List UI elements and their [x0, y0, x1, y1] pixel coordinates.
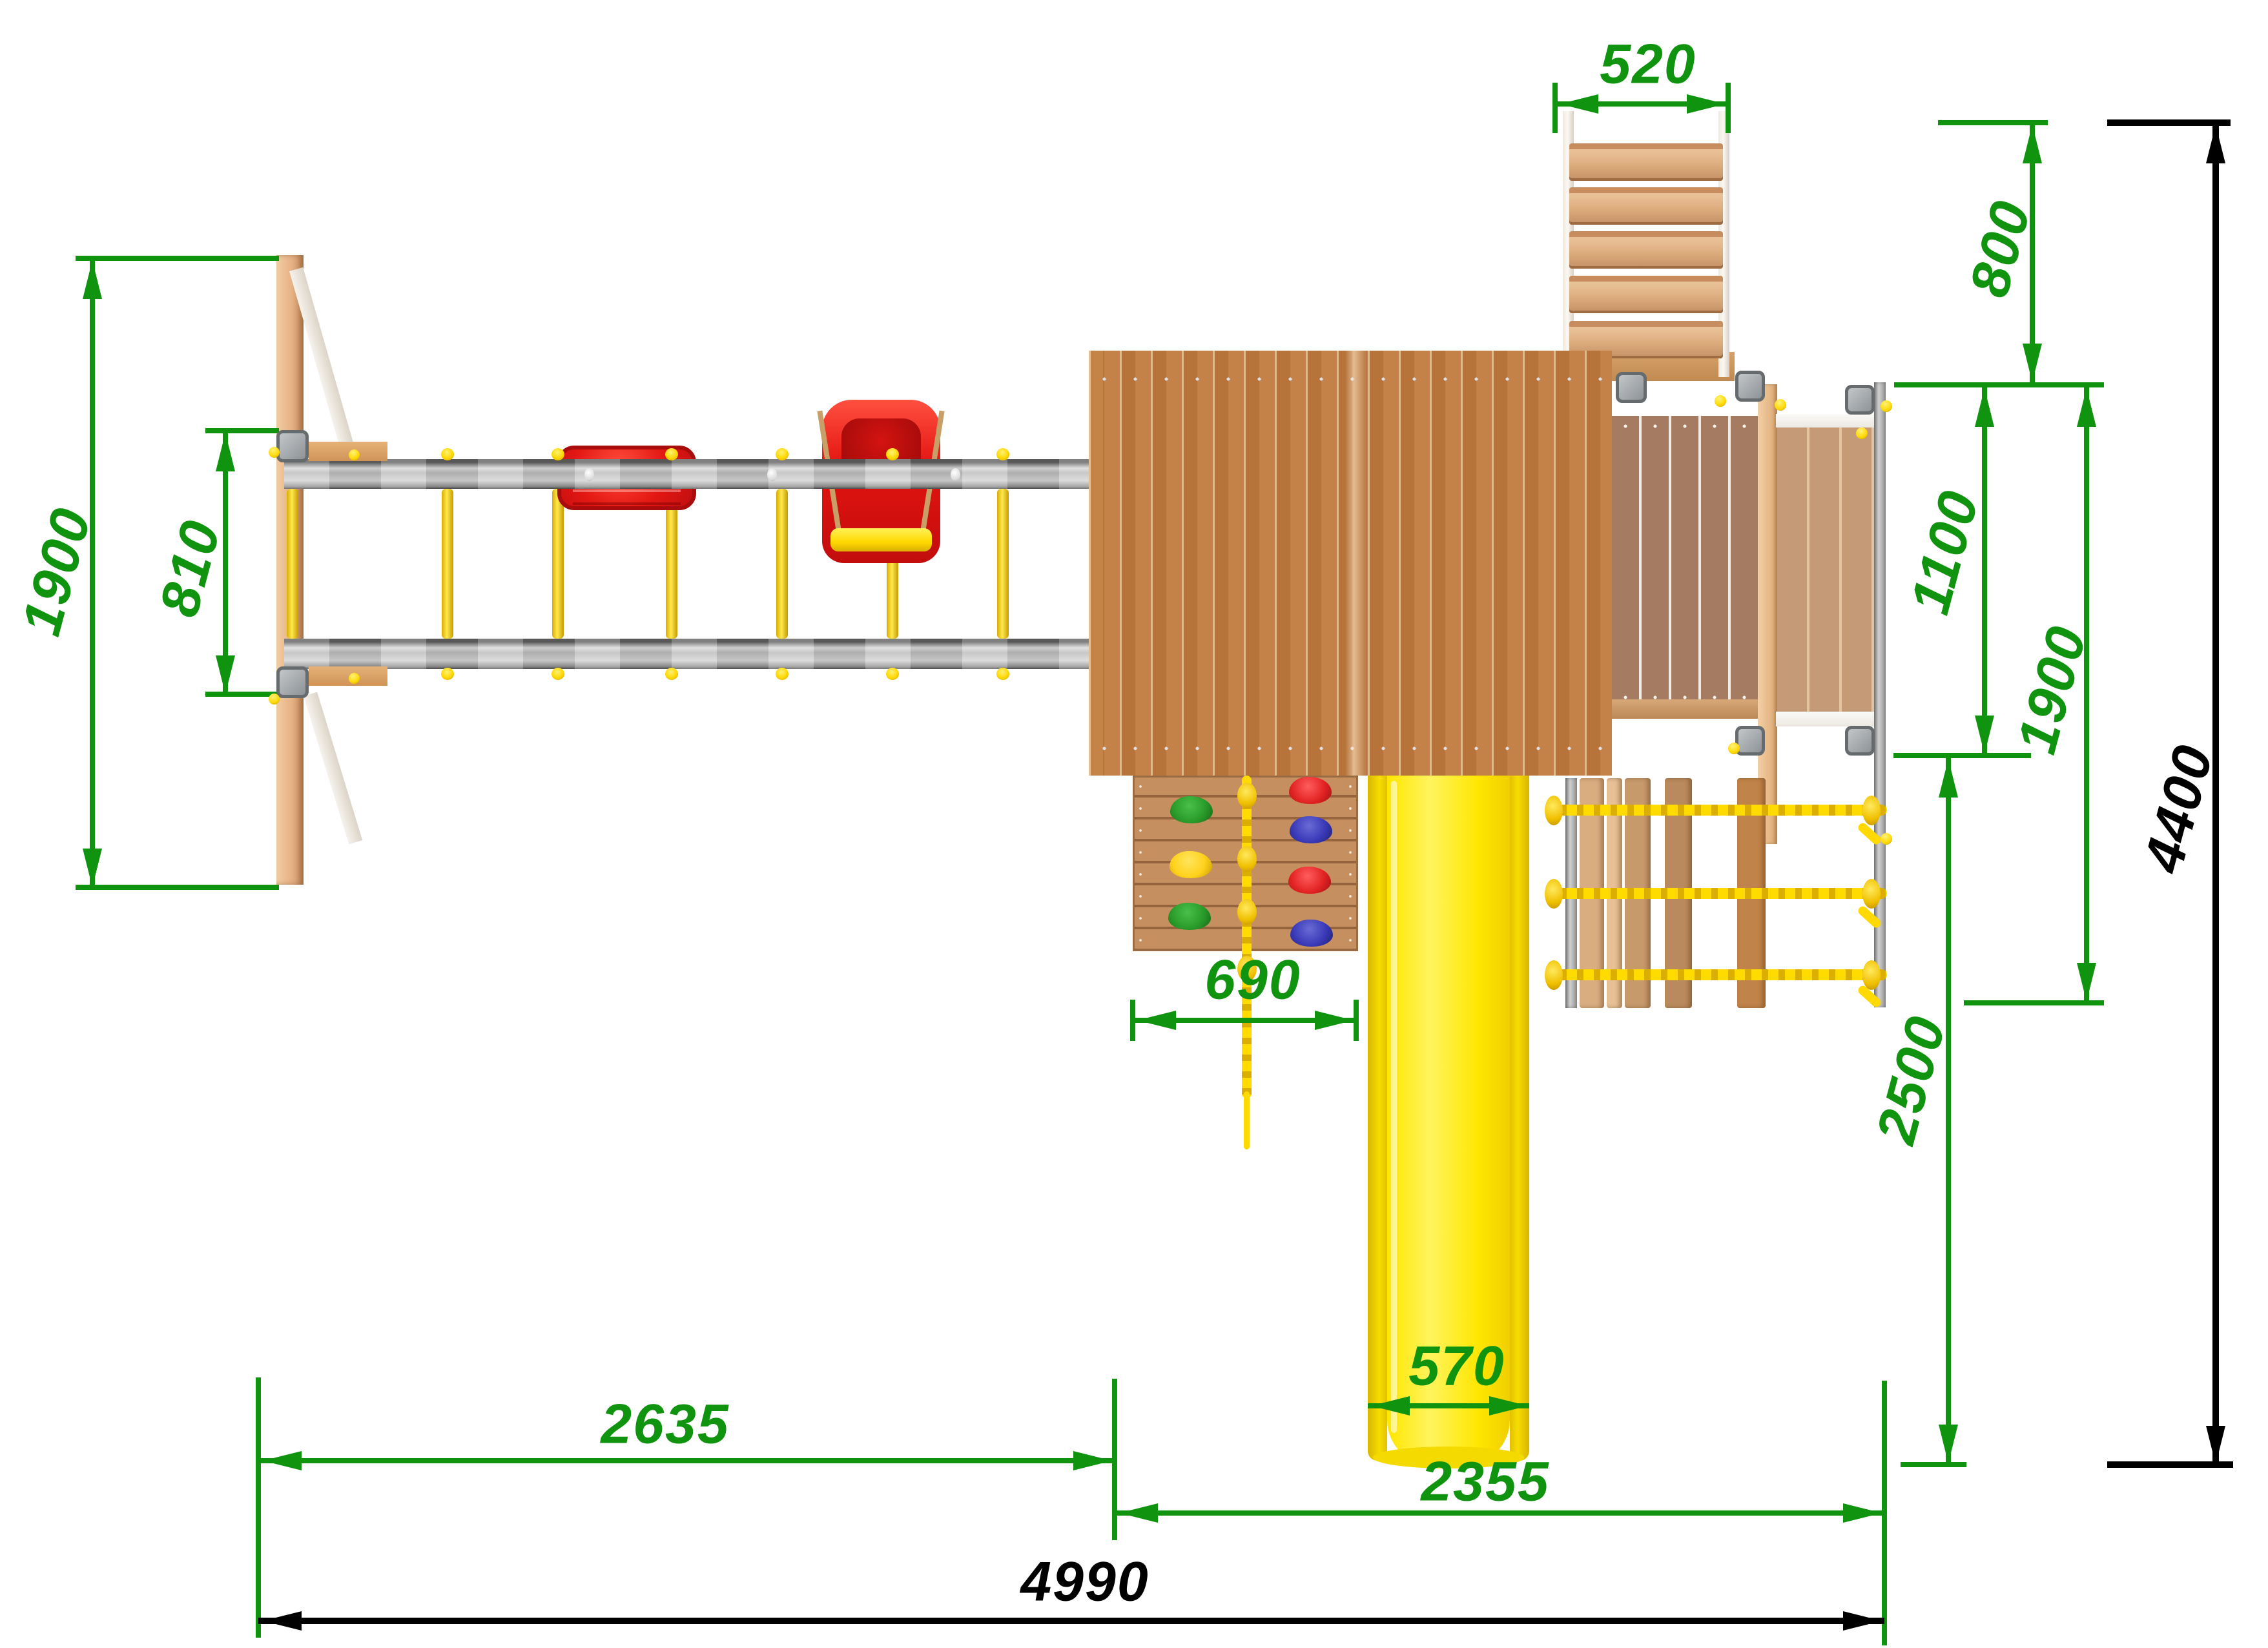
rung-cap: [552, 448, 564, 460]
rung-cap: [886, 448, 899, 460]
swing-rung: [287, 489, 298, 639]
swing-rung: [442, 489, 453, 639]
arrowhead-up: [1939, 757, 1958, 798]
dim-ext: [1552, 83, 1558, 133]
arrowhead-right: [1843, 1611, 1884, 1631]
dim-line: [1982, 385, 1987, 756]
beam-bolt: [584, 468, 594, 481]
slide-rail-left: [1368, 776, 1387, 1461]
arrowhead-up: [1975, 386, 1994, 427]
bolt-yellow: [1881, 833, 1892, 845]
arrowhead-right: [1073, 1451, 1114, 1470]
rope-knot: [1862, 960, 1881, 990]
bolt-yellow: [1728, 743, 1740, 754]
arrowhead-down: [2206, 1426, 2225, 1467]
deck-bracket: [1735, 371, 1765, 402]
climbing-rope-tail: [1244, 1091, 1250, 1149]
net-rope: [1550, 888, 1887, 899]
balcony-planks: [1777, 425, 1874, 714]
deck-bracket: [1735, 726, 1765, 756]
rung-cap: [552, 668, 564, 680]
dim-ext: [256, 1377, 261, 1638]
bolt-yellow: [1856, 427, 1868, 439]
dim-line: [2084, 385, 2089, 1003]
swing-brace-bottom: [304, 692, 362, 845]
beam-bracket-bottom: [276, 666, 309, 698]
deck-bottom-bar: [1609, 699, 1759, 719]
arrowhead-left: [261, 1611, 302, 1631]
swing-rung: [776, 489, 788, 639]
slide-glare: [1391, 781, 1397, 1433]
rung-cap: [665, 668, 678, 680]
roof-seam: [1345, 351, 1367, 776]
arrowhead-left: [1135, 1011, 1176, 1030]
bolt-yellow: [269, 447, 280, 458]
dim-line: [258, 1618, 1884, 1624]
arrowhead-up: [2206, 123, 2225, 163]
beam-bracket-top: [276, 430, 309, 462]
arrowhead-right: [1687, 94, 1727, 114]
swing-beam-top: [284, 459, 1089, 489]
rope-knot: [1545, 960, 1563, 990]
rung-cap: [776, 448, 789, 460]
rope-knot: [1237, 899, 1257, 925]
rung-cap: [996, 448, 1009, 460]
beam-block-top: [309, 442, 387, 461]
stair-tread: [1569, 231, 1723, 269]
climb-hold-yellow: [1170, 851, 1212, 878]
beam-bolt: [951, 468, 960, 481]
dim-line: [258, 1458, 1115, 1463]
deck-planks: [1612, 416, 1758, 717]
climb-hold-red: [1288, 867, 1331, 894]
dim-label-810: 810: [147, 513, 234, 623]
arrowhead-up: [216, 431, 235, 471]
dim-label-1100: 1100: [1898, 484, 1992, 621]
bolt-yellow: [349, 673, 360, 684]
dim-label-2355: 2355: [1421, 1450, 1549, 1514]
arrowhead-down: [83, 849, 102, 889]
rung-cap: [441, 668, 454, 680]
bolt-yellow: [269, 694, 280, 705]
deck-right-rail: [1874, 382, 1886, 1007]
climb-hold-blue: [1290, 920, 1333, 947]
rung-cap: [886, 668, 899, 680]
balcony-rail-bottom: [1776, 712, 1875, 726]
stair-tread: [1569, 143, 1723, 181]
climbing-rope: [1242, 776, 1252, 1098]
baby-seat-tbar: [830, 528, 932, 551]
swing-rung: [666, 489, 677, 639]
rope-knot: [1862, 796, 1881, 825]
dim-label-4990: 4990: [1020, 1550, 1149, 1614]
dim-tick: [1893, 753, 2031, 758]
deck-bracket: [1845, 385, 1875, 415]
arrowhead-left: [1369, 1396, 1410, 1416]
bolt-yellow: [1775, 399, 1786, 411]
drawing-canvas: 1900 810 520 800 1100: [0, 0, 2268, 1648]
arrowhead-down: [1939, 1425, 1958, 1465]
arrowhead-left: [1558, 94, 1598, 114]
arrowhead-right: [1315, 1011, 1356, 1030]
arrowhead-right: [1843, 1503, 1884, 1523]
tower-roof: [1089, 351, 1612, 776]
dim-tick: [76, 885, 279, 890]
dim-label-2635: 2635: [601, 1393, 729, 1457]
stair-tread: [1569, 276, 1723, 313]
bolt-yellow: [1715, 395, 1726, 407]
deck-bracket: [1845, 726, 1875, 756]
arrowhead-left: [261, 1451, 302, 1470]
arrowhead-right: [1489, 1396, 1530, 1416]
bolt-yellow: [1881, 400, 1892, 412]
rung-cap: [776, 668, 789, 680]
arrowhead-up: [83, 258, 102, 299]
slide-rail-right: [1510, 776, 1529, 1461]
dim-label-2500: 2500: [1864, 1009, 1959, 1150]
dim-tick: [1894, 382, 2104, 387]
arrowhead-down: [216, 655, 235, 696]
climb-hold-green: [1170, 796, 1213, 823]
dim-label-520: 520: [1600, 33, 1696, 97]
rope-knot: [1862, 879, 1881, 909]
flat-seat-ridges: [573, 489, 681, 505]
arrowhead-up: [2077, 386, 2096, 427]
dim-line: [90, 258, 95, 887]
swing-rung: [552, 489, 564, 639]
tower-wall-board: [1758, 384, 1777, 844]
swing-rung: [997, 489, 1009, 639]
beam-bolt: [767, 468, 777, 481]
arrowhead-up: [2023, 123, 2042, 163]
beam-block-bottom: [309, 666, 387, 686]
rope-knot: [1545, 796, 1563, 825]
arrowhead-down: [2077, 963, 2096, 1004]
dim-label-690: 690: [1204, 949, 1301, 1013]
rung-cap: [441, 448, 454, 460]
swing-beam-bottom: [284, 639, 1089, 669]
arrowhead-down: [1975, 716, 1994, 756]
arrowhead-left: [1117, 1503, 1158, 1523]
net-rope: [1550, 969, 1887, 980]
arrowhead-down: [2023, 344, 2042, 384]
bolt-yellow: [349, 449, 360, 460]
rung-cap: [665, 448, 678, 460]
net-rope: [1550, 805, 1887, 816]
dim-tick: [76, 256, 279, 261]
rope-knot: [1237, 846, 1257, 872]
dim-label-570: 570: [1408, 1335, 1505, 1399]
climb-hold-blue: [1290, 816, 1332, 843]
rope-knot: [1237, 783, 1257, 809]
balcony-rail-top: [1776, 414, 1875, 427]
rung-cap: [996, 668, 1009, 680]
deck-bracket: [1616, 372, 1647, 403]
climb-hold-red: [1289, 777, 1332, 804]
rope-knot: [1545, 879, 1563, 909]
climb-hold-green: [1168, 903, 1211, 930]
dim-line: [1946, 756, 1951, 1465]
stair-tread: [1569, 187, 1723, 225]
